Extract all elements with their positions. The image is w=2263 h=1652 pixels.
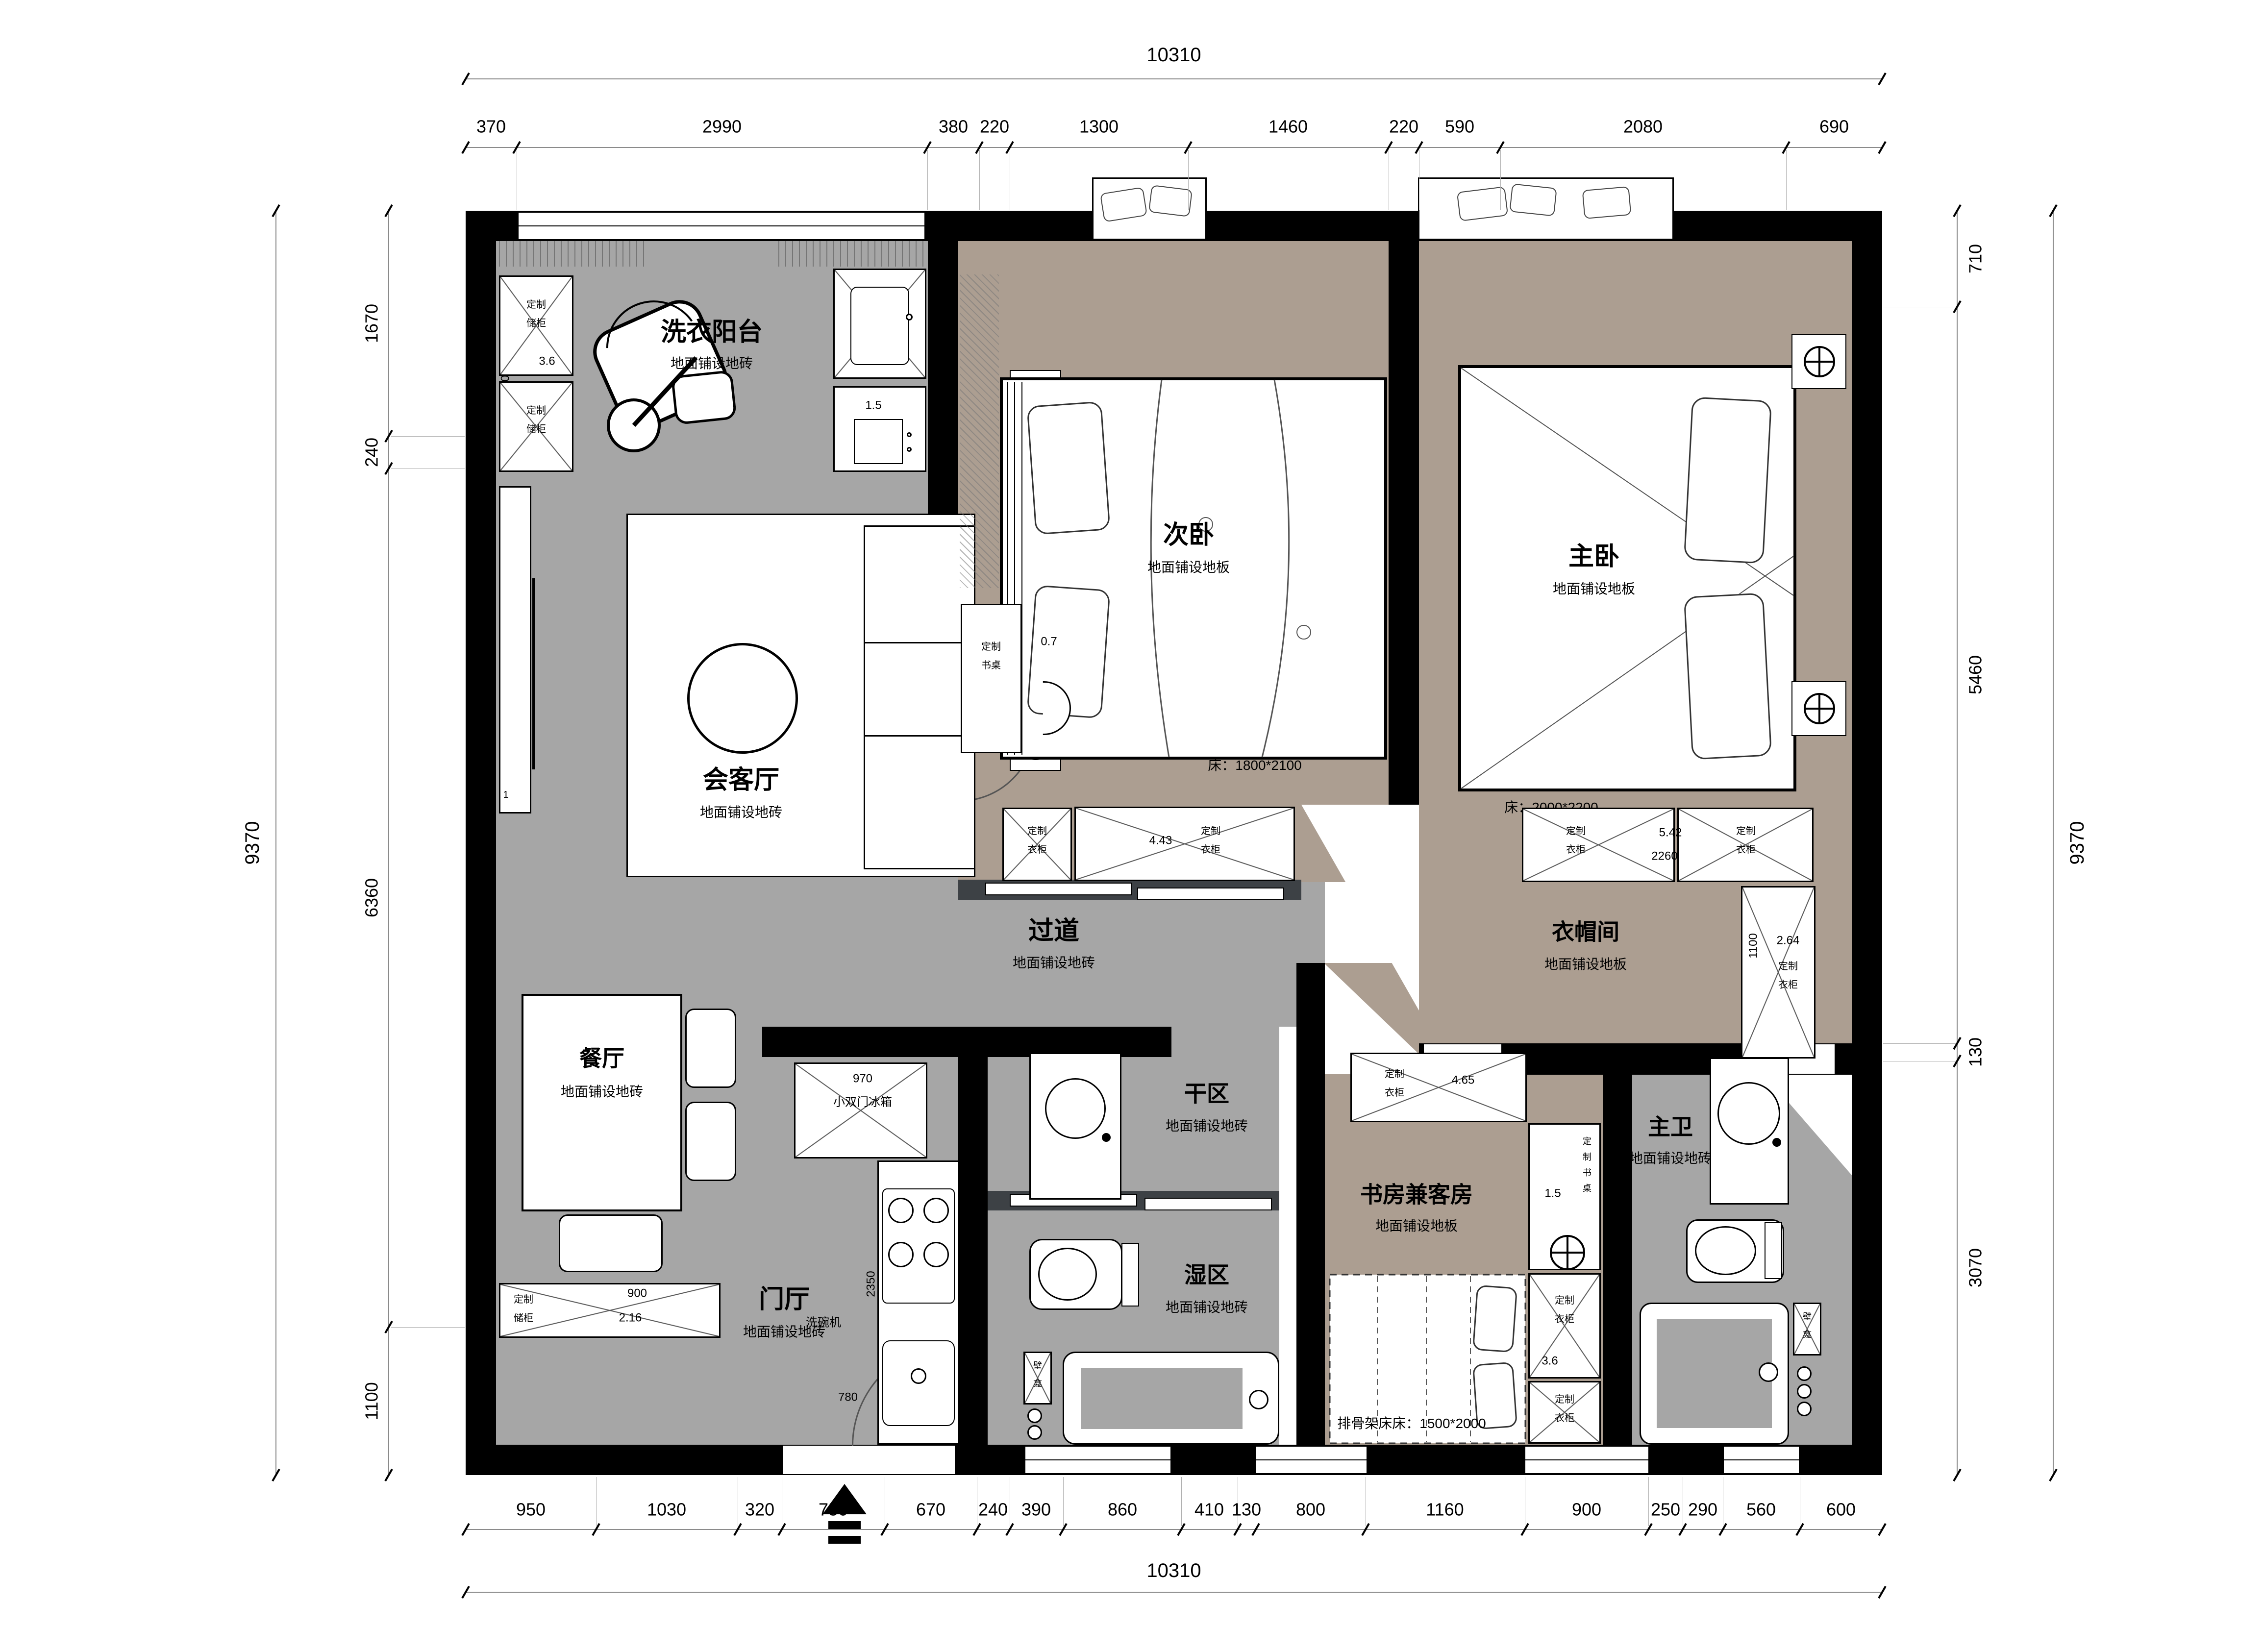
- dining-chair: [685, 1102, 736, 1181]
- dim-line: [466, 1529, 1882, 1530]
- toilet-bowl: [1038, 1248, 1097, 1301]
- bathtub-inner: [1081, 1368, 1243, 1429]
- dry-floor-label: 地面铺设地砖: [1166, 1118, 1248, 1134]
- pillow-icon: [1148, 185, 1193, 217]
- window-laundry: [518, 212, 925, 240]
- cabinet-door: [854, 419, 903, 464]
- cloak-wardrobe-a: [1522, 808, 1675, 882]
- study-floor: 地面铺设地板: [1375, 1218, 1458, 1234]
- dining-table: [522, 994, 682, 1211]
- cloakroom-label: 衣帽间: [1552, 918, 1619, 945]
- wardrobe-area: 4.65: [1452, 1074, 1475, 1088]
- wall-bedroom2-master: [1389, 241, 1419, 805]
- hallway-label: 过道: [1028, 916, 1079, 946]
- living-floor-label: 地面铺设地砖: [700, 804, 782, 821]
- desk-label: 定制: [981, 641, 1001, 653]
- wardrobe-label: 定制: [1736, 825, 1756, 837]
- handle-dot: [907, 432, 912, 437]
- desk-area: 1.5: [1544, 1187, 1561, 1201]
- dim-line: [2053, 211, 2054, 1475]
- floor-plan-canvas: 定制 储柜 3.6 1500 定制 储柜 1.5 洗衣阳台 地面铺设地砖 会客厅…: [0, 0, 2263, 1652]
- hallway-floor-label: 地面铺设地砖: [1013, 955, 1095, 971]
- wardrobe-label: 衣柜: [1555, 1412, 1574, 1424]
- bath-faucet-icon: [1759, 1362, 1778, 1382]
- wall-study-left: [1296, 963, 1325, 1445]
- niche-label: 壁: [1803, 1312, 1812, 1323]
- wardrobe-label: 衣柜: [1555, 1313, 1574, 1325]
- master-bedroom-floor: 地面铺设地板: [1553, 581, 1635, 597]
- wardrobe-label: 定制: [1201, 825, 1220, 837]
- slider-door: [1137, 888, 1284, 900]
- curtain-hatch: [499, 241, 646, 267]
- toilet-bowl: [1695, 1226, 1756, 1275]
- living-room-label: 会客厅: [703, 765, 779, 795]
- wardrobe-label: 衣柜: [1027, 844, 1047, 856]
- dim-total-top: 10310: [1146, 43, 1201, 67]
- tv-panel: [499, 486, 531, 814]
- wall-outer-left: [466, 211, 496, 1475]
- curtain-hatch: [778, 241, 925, 267]
- cabinet-area: 2.16: [619, 1311, 642, 1326]
- shelf-circle: [1027, 1408, 1042, 1423]
- dim-line: [275, 211, 276, 1475]
- entry-arrow-bar: [828, 1536, 861, 1544]
- pillow-icon: [1509, 183, 1557, 216]
- wardrobe-label: 定制: [1566, 825, 1586, 837]
- wardrobe-dim: 2260: [1651, 850, 1677, 864]
- wardrobe-area: 3.6: [1542, 1355, 1558, 1369]
- dining-chair: [559, 1214, 663, 1272]
- drain-target-icon: [1804, 693, 1835, 724]
- slider-door: [985, 883, 1132, 895]
- wardrobe-label: 衣柜: [1736, 844, 1756, 856]
- wardrobe-label: 定制: [1385, 1068, 1404, 1080]
- wall-outer-right: [1852, 211, 1882, 1475]
- dim-line: [466, 78, 1882, 79]
- cabinet-area: 1.5: [865, 399, 881, 413]
- fridge-dim: 970: [853, 1072, 872, 1086]
- cloak-wardrobe-side: [1741, 886, 1815, 1059]
- second-bedroom-label: 次卧: [1163, 520, 1214, 550]
- study-bed-size: 排骨架床床：1500*2000: [1337, 1415, 1486, 1432]
- study-label: 书房兼客房: [1360, 1181, 1473, 1208]
- toilet-tank: [1765, 1222, 1782, 1279]
- window-bottom: [1024, 1446, 1171, 1474]
- niche-label: 龛: [1033, 1379, 1042, 1389]
- cabinet-label: 定制: [526, 299, 546, 311]
- sofa-line: [865, 642, 974, 643]
- faucet-icon: [906, 314, 913, 321]
- entry-opening: [783, 1446, 955, 1474]
- wet-niche: [1023, 1352, 1052, 1405]
- bed-master: [1458, 365, 1796, 791]
- dim-line: [466, 147, 1882, 148]
- burner-icon: [888, 1198, 914, 1223]
- desk-target-icon: [1550, 1235, 1585, 1270]
- living-tag: 1: [503, 789, 508, 801]
- niche-label: 龛: [1803, 1330, 1812, 1340]
- faucet-icon: [1772, 1138, 1781, 1147]
- basin-icon: [1717, 1082, 1780, 1145]
- curtain-hatch: [960, 274, 999, 588]
- burner-icon: [923, 1242, 949, 1267]
- cabinet-label: 储柜: [526, 423, 546, 435]
- dim-line: [388, 211, 389, 1475]
- cabinet-dim: 900: [627, 1287, 647, 1301]
- wardrobe-label: 衣柜: [1778, 979, 1798, 991]
- desk-label: 定: [1583, 1136, 1592, 1147]
- dim-total-bottom: 10310: [1146, 1559, 1201, 1582]
- wall-study-bath: [1603, 1075, 1632, 1445]
- wet-area-label: 湿区: [1184, 1261, 1229, 1288]
- burner-icon: [923, 1198, 949, 1223]
- entry-arrow-bar: [828, 1521, 861, 1529]
- wardrobe-label: 定制: [1555, 1394, 1574, 1405]
- wardrobe-area: 5.42: [1659, 826, 1682, 840]
- desk-label: 书桌: [981, 660, 1001, 671]
- drain-icon: [911, 1368, 926, 1384]
- laundry-room-label: 洗衣阳台: [661, 317, 763, 347]
- second-bedroom-bed-size: 床：1800*2100: [1208, 757, 1301, 774]
- cloakroom-floor: 地面铺设地板: [1544, 956, 1627, 973]
- kitchen-dim: 2350: [865, 1271, 879, 1297]
- bedroom2-wardrobe-b: [1074, 807, 1295, 881]
- basin-icon: [1045, 1078, 1106, 1139]
- dry-area-label: 干区: [1184, 1080, 1229, 1107]
- laundry-sink: [850, 287, 909, 365]
- wardrobe-label: 衣柜: [1385, 1087, 1404, 1099]
- wardrobe-label: 定制: [1027, 825, 1047, 837]
- second-bedroom-floor: 地面铺设地板: [1147, 559, 1230, 576]
- wardrobe-label: 定制: [1555, 1295, 1574, 1307]
- cabinet-label: 定制: [526, 405, 546, 417]
- desk-label: 桌: [1583, 1184, 1592, 1194]
- slider-door: [1144, 1198, 1272, 1210]
- dim-total-right: 9370: [2065, 821, 2089, 865]
- wardrobe-label: 衣柜: [1201, 844, 1220, 856]
- round-table: [687, 643, 798, 754]
- desk-label: 书: [1583, 1168, 1592, 1179]
- dining-room-label: 餐厅: [579, 1045, 624, 1072]
- handle-dot: [907, 447, 912, 452]
- toilet-tank: [1121, 1243, 1139, 1307]
- cabinet-label: 储柜: [514, 1312, 533, 1324]
- wardrobe-dim: 1100: [1747, 933, 1761, 959]
- wardrobe-label: 衣柜: [1566, 844, 1586, 856]
- dim-line: [1957, 211, 1958, 1475]
- window-bottom: [1524, 1446, 1649, 1474]
- window-bottom: [1723, 1446, 1800, 1474]
- desk-label: 制: [1583, 1152, 1592, 1163]
- desk-area: 0.7: [1041, 635, 1057, 649]
- wall-kitchen-top: [762, 1027, 958, 1057]
- cabinet-area: 3.6: [539, 355, 555, 369]
- cabinet-label: 储柜: [526, 318, 546, 329]
- sofa-line: [865, 735, 974, 737]
- wardrobe-label: 定制: [1778, 961, 1798, 972]
- wardrobe-area: 2.64: [1777, 934, 1800, 948]
- dishwasher-label: 洗碗机: [806, 1316, 841, 1331]
- master-bath-label: 主卫: [1648, 1113, 1693, 1140]
- study-wardrobe-mid: [1528, 1273, 1601, 1379]
- pillow-icon: [1582, 186, 1632, 219]
- shelf-circle: [1027, 1425, 1042, 1440]
- niche-label: 壁: [1033, 1361, 1042, 1372]
- wardrobe-area: 4.43: [1149, 834, 1172, 848]
- dining-floor-label: 地面铺设地砖: [561, 1084, 643, 1100]
- entry-room-label: 门厅: [759, 1284, 810, 1315]
- kitchen-dim: 780: [838, 1391, 858, 1405]
- bath-niche: [1793, 1303, 1821, 1356]
- wet-floor-label: 地面铺设地砖: [1166, 1299, 1248, 1316]
- bathtub-inner: [1657, 1319, 1772, 1428]
- shelf-circle: [1797, 1384, 1812, 1399]
- window-bottom: [1255, 1446, 1368, 1474]
- dim-line: [466, 1592, 1882, 1593]
- dining-chair: [685, 1009, 736, 1088]
- fridge-label: 小双门冰箱: [833, 1096, 892, 1110]
- master-bath-floor: 地面铺设地砖: [1629, 1150, 1712, 1167]
- shelf-circle: [1797, 1366, 1812, 1381]
- shelf-circle: [1797, 1402, 1812, 1416]
- kitchen-dim: 2920: [966, 1232, 980, 1257]
- tv-handle: [532, 578, 535, 769]
- study-wardrobe-top: [1350, 1053, 1527, 1122]
- drain-target-icon: [1804, 346, 1835, 377]
- bath-faucet-icon: [1249, 1390, 1268, 1409]
- bedroom2-desk: [961, 604, 1022, 753]
- entry-cabinet: [499, 1283, 721, 1338]
- wall-outer-bottom: [466, 1445, 1882, 1475]
- burner-icon: [888, 1242, 914, 1267]
- cabinet-label: 定制: [514, 1294, 533, 1306]
- chaise-sofa: [864, 525, 975, 869]
- laundry-floor-label: 地面铺设地砖: [671, 355, 753, 372]
- dim-total-left: 9370: [241, 821, 264, 865]
- master-bedroom-label: 主卧: [1568, 542, 1619, 572]
- faucet-icon: [1102, 1133, 1111, 1142]
